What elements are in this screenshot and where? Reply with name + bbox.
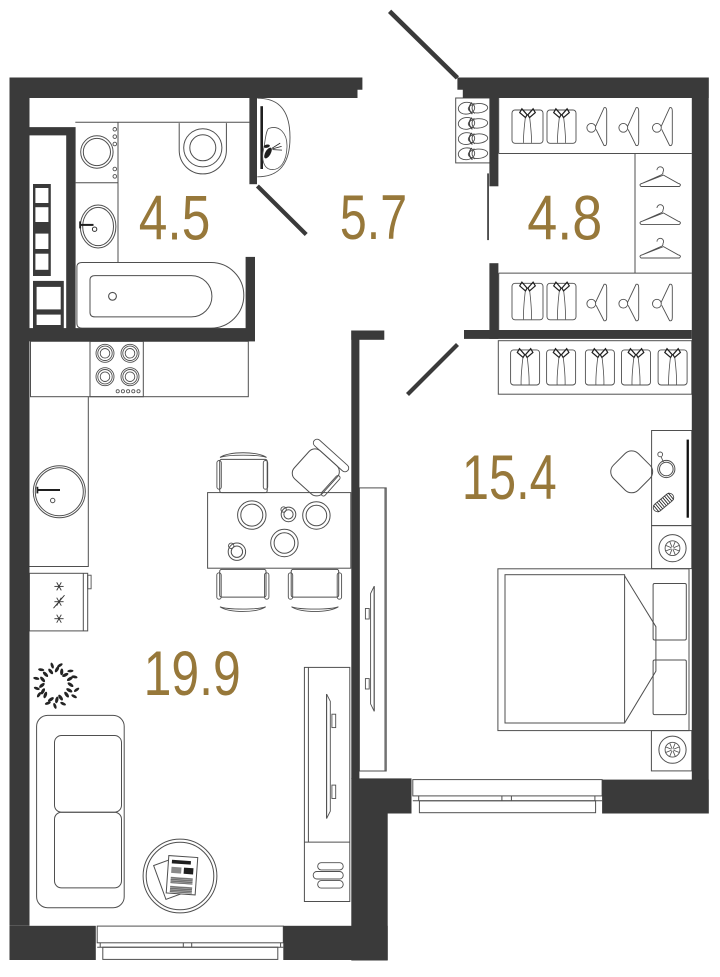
svg-text:5.7: 5.7 xyxy=(340,183,407,253)
svg-text:19.9: 19.9 xyxy=(144,639,241,709)
svg-text:4.8: 4.8 xyxy=(527,184,602,254)
svg-text:4.5: 4.5 xyxy=(139,184,211,254)
svg-text:15.4: 15.4 xyxy=(462,443,557,513)
